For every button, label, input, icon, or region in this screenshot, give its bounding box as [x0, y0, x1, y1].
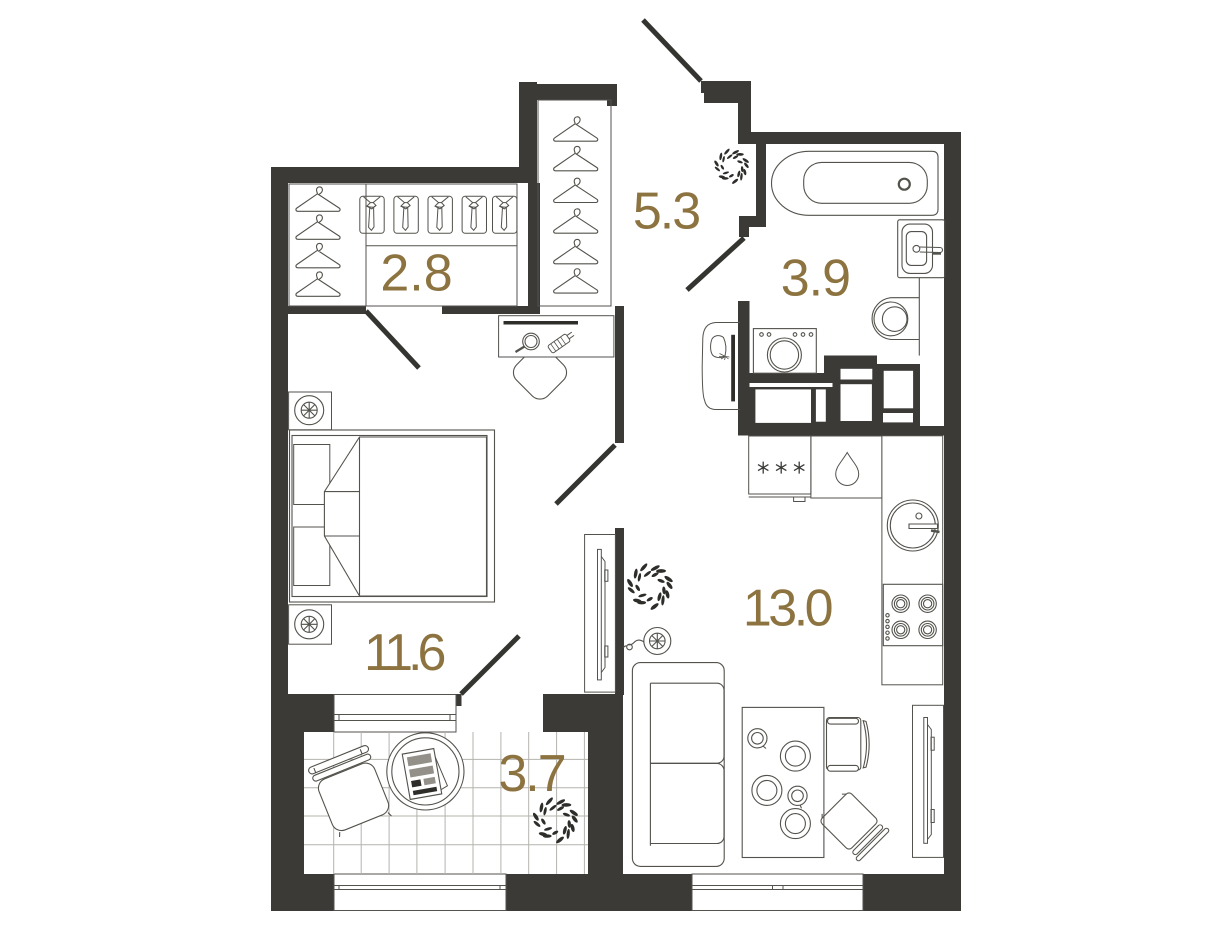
svg-text:5.3: 5.3	[633, 183, 699, 241]
svg-text:3.7: 3.7	[498, 745, 564, 803]
svg-text:2.8: 2.8	[380, 245, 452, 303]
svg-text:11.6: 11.6	[364, 624, 444, 682]
svg-text:13.0: 13.0	[743, 580, 832, 638]
svg-text:3.9: 3.9	[781, 250, 850, 308]
